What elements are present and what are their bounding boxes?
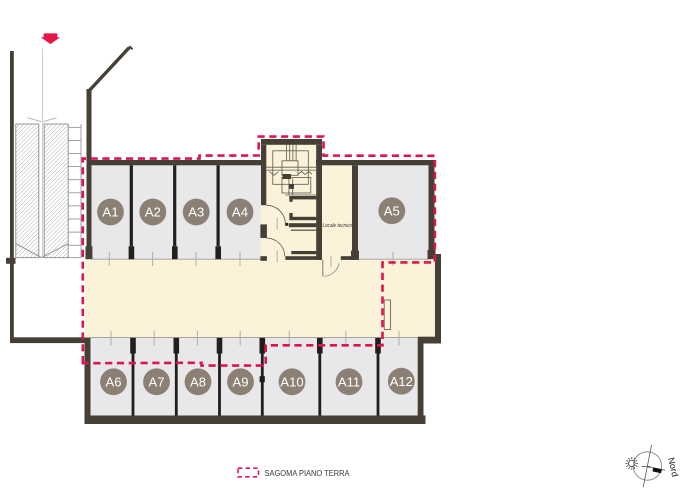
svg-text:A4: A4 (232, 205, 248, 220)
svg-text:SAGOMA PIANO TERRA: SAGOMA PIANO TERRA (265, 469, 351, 478)
svg-text:A7: A7 (149, 374, 165, 389)
svg-text:A9: A9 (233, 374, 249, 389)
svg-text:A1: A1 (102, 205, 118, 220)
svg-text:A10: A10 (280, 374, 303, 389)
svg-text:A2: A2 (145, 205, 161, 220)
svg-text:A3: A3 (188, 205, 204, 220)
svg-text:A8: A8 (190, 374, 206, 389)
svg-text:A6: A6 (106, 374, 122, 389)
svg-text:A11: A11 (338, 374, 360, 389)
svg-text:A5: A5 (384, 203, 400, 218)
svg-text:Locale tecnico: Locale tecnico (323, 223, 353, 229)
svg-text:A12: A12 (390, 374, 413, 389)
